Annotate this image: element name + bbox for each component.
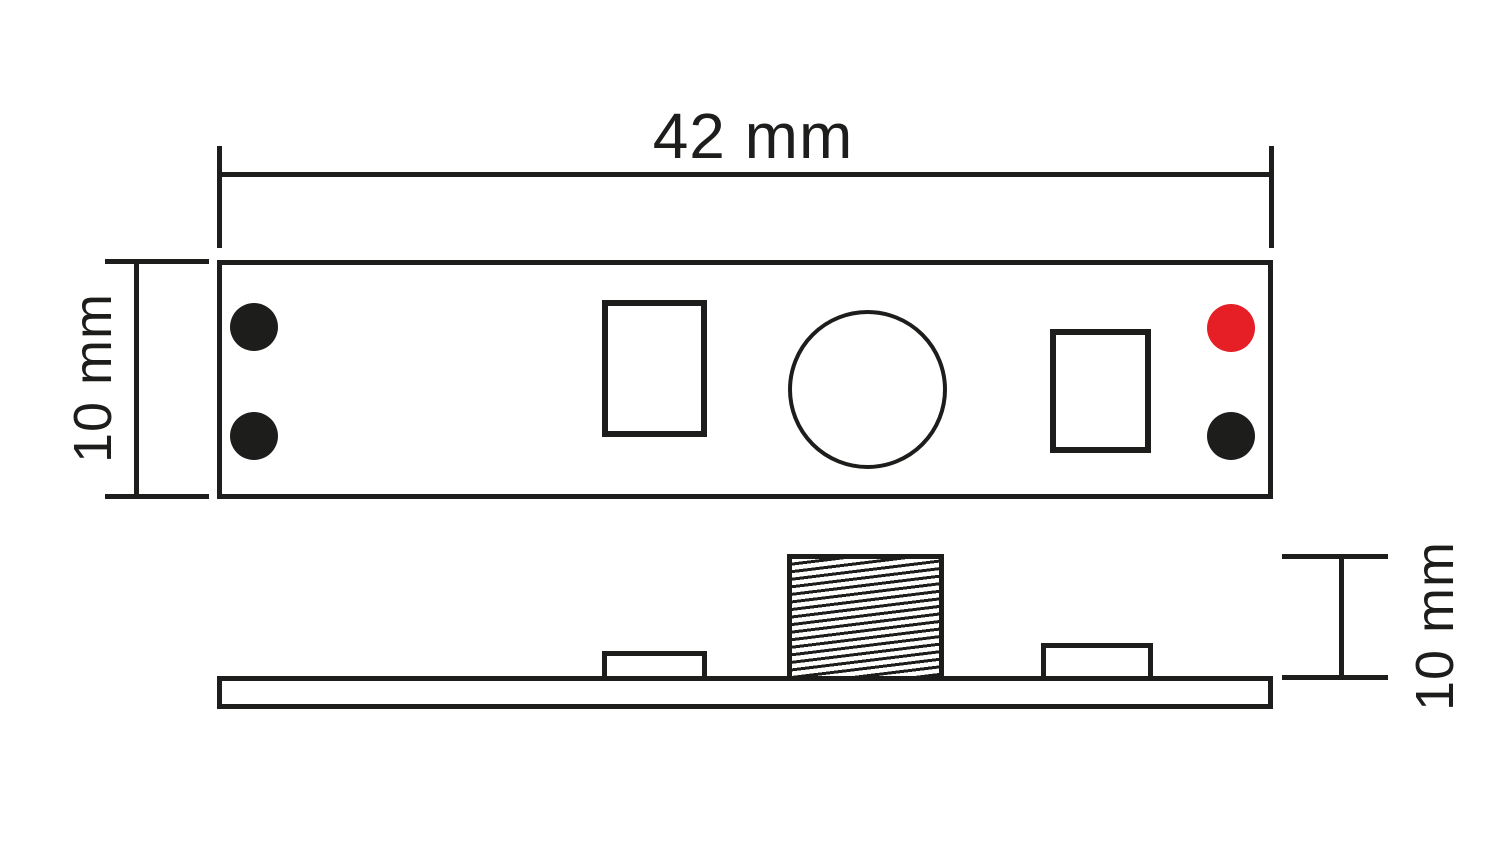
height-dimension-label: 10 mm	[66, 228, 126, 528]
thickness-dimension-label: 10 mm	[1408, 476, 1468, 776]
thickness-dimension-tick-top	[1282, 554, 1388, 559]
touch-button-circle	[788, 310, 947, 469]
thickness-dimension-line	[1339, 556, 1344, 678]
height-dimension-tick-bottom	[105, 494, 209, 499]
height-dimension-tick-top	[105, 259, 209, 264]
width-dimension-line	[219, 172, 1272, 177]
solder-pad-left-top	[230, 303, 278, 351]
height-dimension-line	[134, 261, 139, 499]
red-indicator-dot	[1207, 304, 1255, 352]
side-knob-hatched	[787, 554, 944, 681]
width-dimension-extension-right	[1269, 146, 1274, 248]
solder-pad-left-bottom	[230, 412, 278, 460]
width-dimension-label: 42 mm	[603, 104, 903, 168]
solder-pad-right-bottom	[1207, 412, 1255, 460]
drawing-canvas: 42 mm 10 mm 10 mm	[0, 0, 1500, 845]
width-dimension-extension-left	[217, 146, 222, 248]
side-view-board	[217, 676, 1273, 709]
component-square-left	[602, 300, 707, 437]
thickness-dimension-tick-bottom	[1282, 675, 1388, 680]
component-square-right	[1050, 329, 1151, 453]
